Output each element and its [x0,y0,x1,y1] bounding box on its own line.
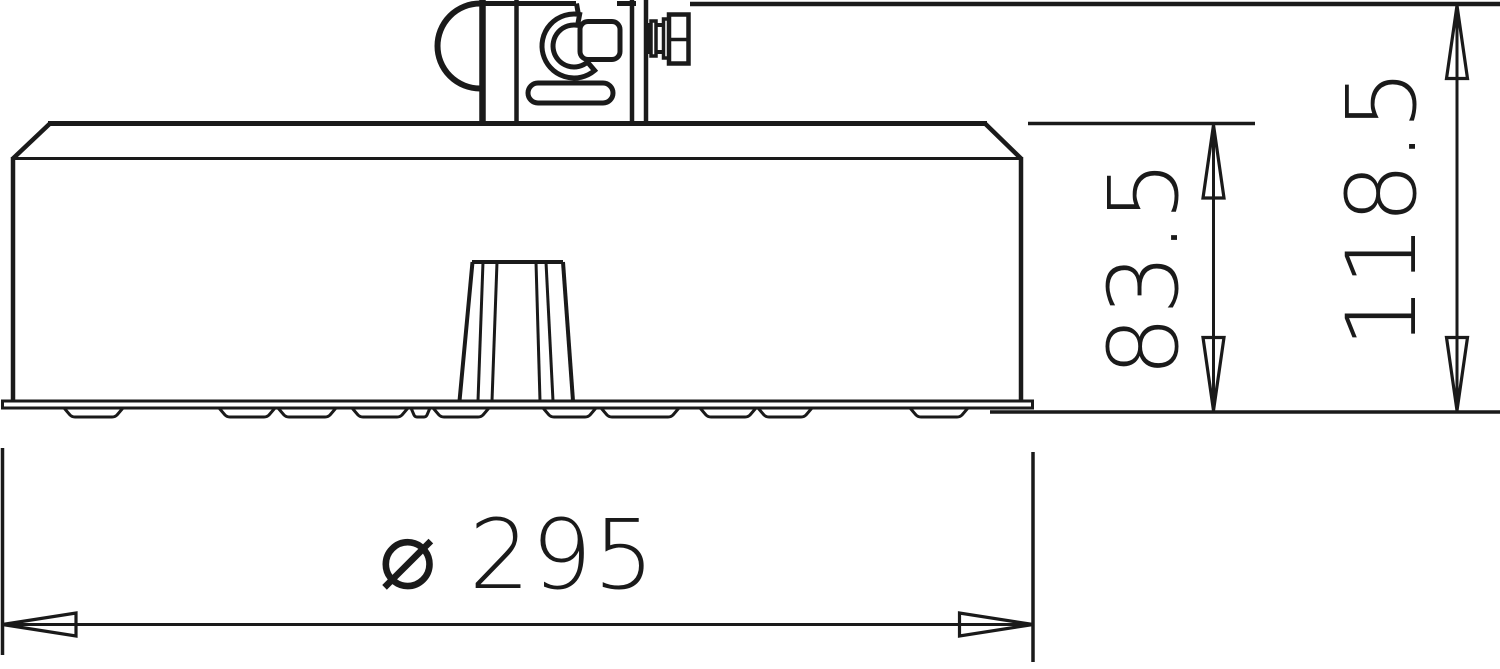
dimension-diameter: ⌀ 295 [3,448,1034,662]
base-plate [3,401,1033,408]
clamp-round-head-arc [438,4,480,89]
cone-outer-right [563,262,573,401]
dimension-base-height: 83.5 [1028,124,1255,413]
technical-drawing-canvas: ⌀ 295 83.5 118.5 [0,0,1500,669]
total-height-label: 118.5 [1326,68,1438,348]
cone-rib-line [478,262,483,401]
cone-outer-left [460,262,473,401]
cone-rib-line [546,262,553,401]
cone-rib-line [492,262,497,401]
base-height-label: 83.5 [1088,159,1200,377]
body-left-bevel [13,124,50,159]
clamp-slot [528,83,613,103]
body-right-bevel [985,124,1021,159]
clamp-assembly [438,0,689,122]
clamp-bolt [649,15,689,64]
diameter-label: ⌀ 295 [379,499,656,611]
center-cone [460,262,574,401]
cone-rib-line [536,262,540,401]
base-plate-strip [3,401,1033,408]
bolt-flange [651,21,656,56]
conductor-rod [580,22,620,60]
